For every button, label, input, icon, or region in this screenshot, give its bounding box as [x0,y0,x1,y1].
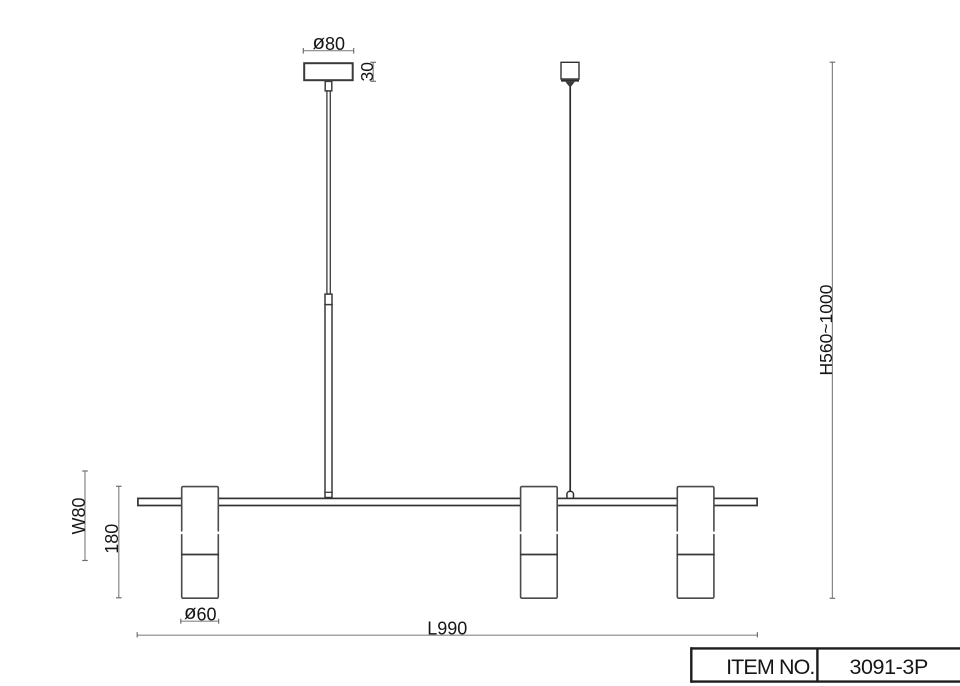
svg-text:3091-3P: 3091-3P [849,655,928,679]
svg-text:180: 180 [102,524,122,554]
svg-text:ø80: ø80 [313,31,346,54]
svg-text:ø60: ø60 [184,601,217,624]
svg-text:30: 30 [357,62,377,82]
svg-text:ITEM NO.: ITEM NO. [726,655,814,679]
svg-text:W80: W80 [69,497,89,534]
svg-text:L990: L990 [427,619,467,639]
svg-text:H560~1000: H560~1000 [816,284,836,375]
